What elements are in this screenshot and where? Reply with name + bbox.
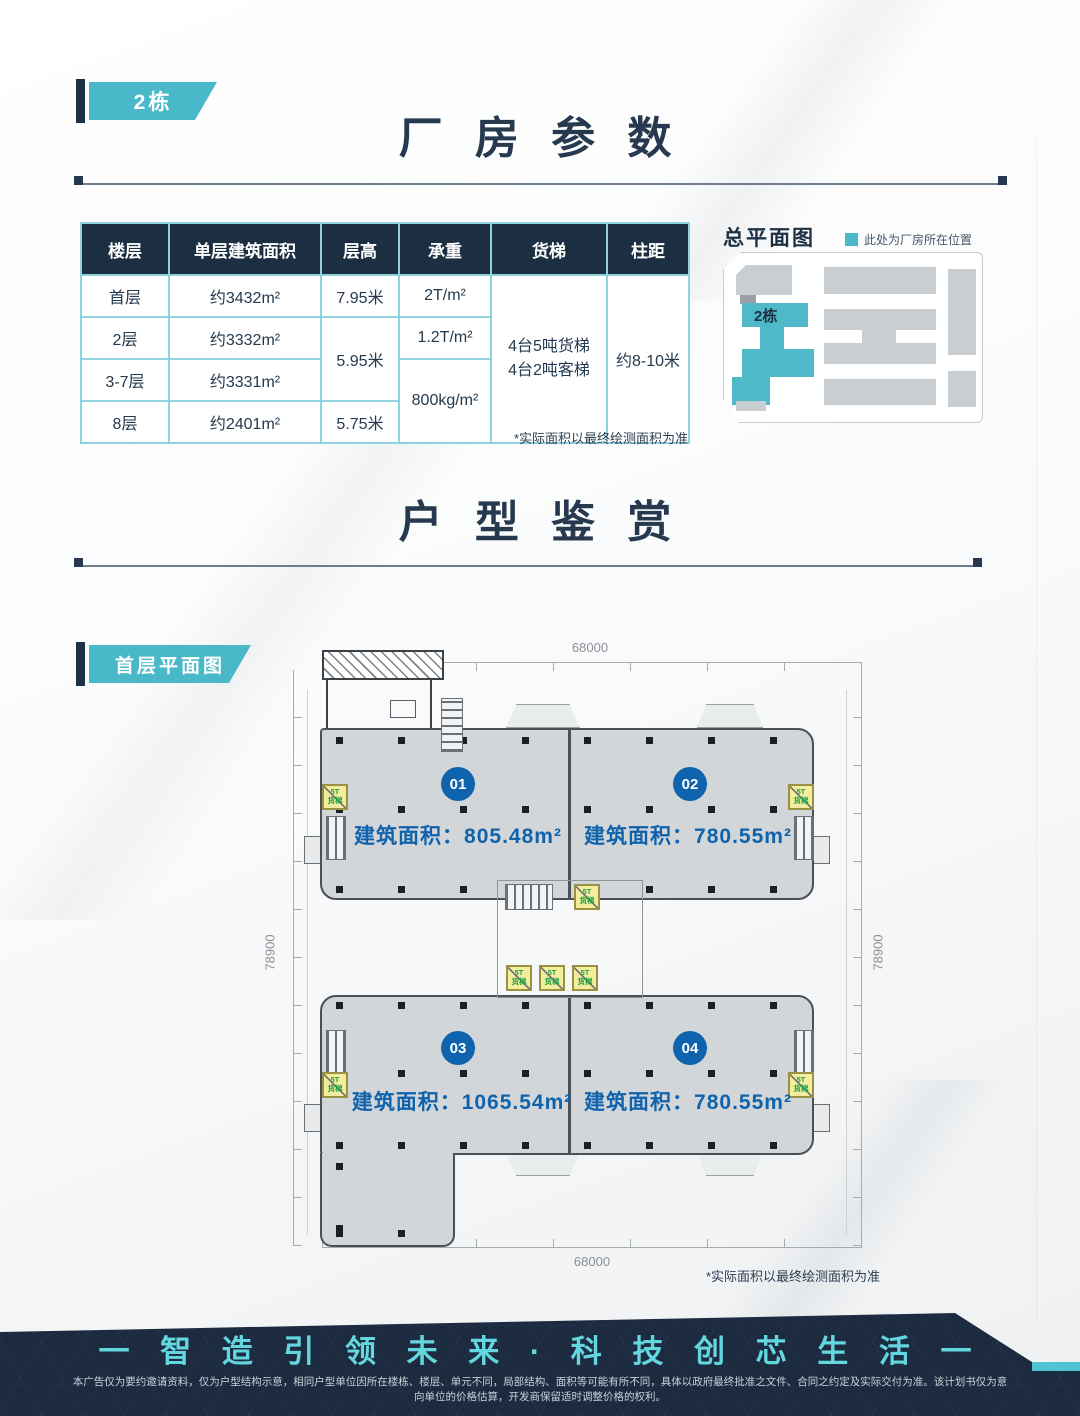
column-row	[336, 806, 792, 813]
section-title-params: 厂 房 参 数	[0, 102, 1080, 166]
area-prefix: 建筑面积：	[584, 825, 694, 848]
unit-divider-wall	[568, 728, 571, 900]
area-value: 780.55m²	[694, 1091, 792, 1114]
cell-area: 约3332m²	[169, 317, 321, 359]
freight-lift: 5T 货梯	[572, 965, 598, 991]
column-row	[336, 1070, 792, 1077]
siteplan-building-gray	[736, 401, 766, 411]
unit-number-badge: 04	[673, 1031, 707, 1065]
cell-load: 2T/m²	[399, 275, 491, 317]
stairs	[505, 884, 553, 910]
col-header-area: 单层建筑面积	[169, 223, 321, 275]
siteplan-building-gray	[736, 265, 792, 295]
elevator-line: 4台5吨货梯	[493, 335, 605, 359]
entrance-ramp	[506, 704, 580, 728]
unit-number-badge: 03	[441, 1031, 475, 1065]
floorplan-badge: 首层平面图	[89, 645, 251, 683]
freight-lift: 5T 货梯	[788, 784, 814, 810]
table-row: 首层 约3432m² 7.95米 2T/m² 4台5吨货梯 4台2吨客梯 约8-…	[81, 275, 689, 317]
table-header-row: 楼层 单层建筑面积 层高 承重 货梯 柱距	[81, 223, 689, 275]
dimension-ticks	[293, 670, 302, 1246]
column-row	[336, 1230, 451, 1237]
unit-area-label: 建筑面积：780.55m²	[558, 1086, 818, 1116]
col-header-height: 层高	[321, 223, 399, 275]
legend-swatch-icon	[845, 233, 858, 246]
dimension-left: 78900	[263, 923, 278, 983]
area-prefix: 建筑面积：	[354, 825, 464, 848]
cell-load: 1.2T/m²	[399, 317, 491, 359]
cell-spacing: 约8-10米	[607, 275, 689, 443]
column-row	[336, 1002, 792, 1009]
freight-lift: 5T 货梯	[574, 884, 600, 910]
col-header-spacing: 柱距	[607, 223, 689, 275]
area-value: 780.55m²	[694, 825, 792, 848]
siteplan-highlight-label: 2栋	[754, 305, 777, 326]
cell-floor: 3-7层	[81, 359, 169, 401]
lift-label: 货梯	[578, 978, 593, 987]
entrance-ramp	[697, 704, 763, 728]
divider-end-square	[74, 558, 83, 567]
area-value: 805.48m²	[464, 825, 562, 848]
divider-line	[76, 565, 982, 567]
lift-label: 货梯	[545, 978, 560, 987]
column-row	[336, 1142, 792, 1149]
siteplan-building-gray	[948, 269, 976, 355]
cell-height: 5.95米	[321, 317, 399, 401]
footer-slogan: 一 智 造 引 领 未 来 · 科 技 创 芯 生 活 一	[0, 1326, 1080, 1371]
entry-box	[390, 700, 416, 718]
siteplan-title: 总平面图	[723, 222, 815, 252]
unit-area-label: 建筑面积：805.48m²	[328, 820, 588, 850]
siteplan-building-gray	[862, 309, 896, 364]
lift-label: 货梯	[512, 978, 527, 987]
elevator-line: 4台2吨客梯	[493, 359, 605, 383]
dimension-ticks	[853, 670, 862, 1246]
siteplan-legend: 此处为厂房所在位置	[845, 231, 972, 248]
canopy-post	[430, 680, 432, 728]
col-header-floor: 楼层	[81, 223, 169, 275]
cell-area: 约2401m²	[169, 401, 321, 443]
canopy-post	[326, 680, 328, 728]
column-row	[336, 737, 792, 744]
canopy-hatched	[322, 650, 444, 680]
lift-label: 货梯	[794, 797, 809, 806]
dimension-right: 78900	[871, 923, 886, 983]
floorplan-footnote: *实际面积以最终绘测面积为准	[560, 1266, 880, 1285]
col-header-load: 承重	[399, 223, 491, 275]
cell-area: 约3331m²	[169, 359, 321, 401]
cell-floor: 2层	[81, 317, 169, 359]
unit-number-badge: 02	[673, 767, 707, 801]
brochure-page: 2栋 厂 房 参 数 楼层 单层建筑面积 层高 承重 货梯 柱距 首层 约343…	[0, 0, 1080, 1416]
freight-lift: 5T 货梯	[506, 965, 532, 991]
cell-floor: 8层	[81, 401, 169, 443]
wall-bump	[304, 1104, 321, 1132]
unit-area-label: 建筑面积：1065.54m²	[332, 1086, 592, 1116]
cell-height: 7.95米	[321, 275, 399, 317]
area-prefix: 建筑面积：	[352, 1091, 462, 1114]
unit-area-label: 建筑面积：780.55m²	[558, 820, 818, 850]
stairs	[326, 1030, 346, 1074]
section-title-units: 户 型 鉴 赏	[0, 486, 1080, 550]
dimension-line	[846, 690, 847, 1235]
table-footnote: *实际面积以最终绘测面积为准	[388, 428, 688, 447]
badge-accent-bar	[76, 642, 85, 686]
dimension-line	[307, 690, 308, 1235]
siteplan-building-gray	[824, 379, 936, 405]
divider-end-square	[998, 176, 1007, 185]
divider-end-square	[973, 558, 982, 567]
wall-bump	[304, 836, 321, 864]
siteplan-building-gray	[948, 371, 976, 407]
siteplan-building-highlight	[742, 349, 814, 377]
stairs	[794, 1030, 814, 1074]
footer-disclaimer: 本广告仅为要约邀请资料，仅为户型结构示意，相同户型单位因所在楼栋、楼层、单元不同…	[0, 1374, 1080, 1404]
unit-number-badge: 01	[441, 767, 475, 801]
page-edge-line	[1036, 140, 1037, 1320]
col-header-elevator: 货梯	[491, 223, 607, 275]
freight-lift: 5T 货梯	[539, 965, 565, 991]
column-column	[336, 1162, 343, 1232]
lift-label: 货梯	[328, 797, 343, 806]
legend-label: 此处为厂房所在位置	[864, 231, 972, 248]
freight-lift: 5T 货梯	[322, 784, 348, 810]
stairs	[441, 698, 463, 752]
entrance-ramp	[697, 1152, 763, 1176]
area-value: 1065.54m²	[462, 1091, 573, 1114]
entrance-ramp	[506, 1152, 580, 1176]
siteplan-building-highlight	[760, 327, 784, 349]
siteplan-map: 2栋	[723, 252, 983, 423]
area-prefix: 建筑面积：	[584, 1091, 694, 1114]
lift-label: 货梯	[580, 897, 595, 906]
cell-area: 约3432m²	[169, 275, 321, 317]
siteplan-building-gray	[824, 267, 936, 294]
cell-elevator: 4台5吨货梯 4台2吨客梯	[491, 275, 607, 443]
params-table: 楼层 单层建筑面积 层高 承重 货梯 柱距 首层 约3432m² 7.95米 2…	[80, 222, 690, 444]
divider-line	[76, 183, 1006, 185]
building-block-top	[320, 728, 814, 900]
cell-floor: 首层	[81, 275, 169, 317]
divider-end-square	[74, 176, 83, 185]
